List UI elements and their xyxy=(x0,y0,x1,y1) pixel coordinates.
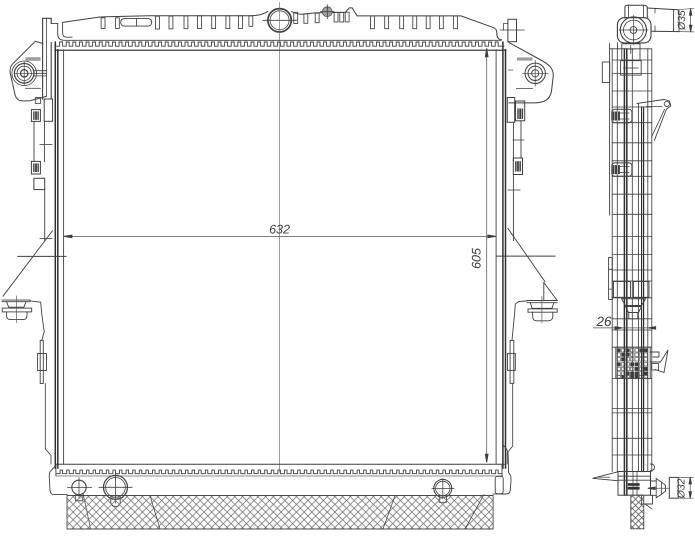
svg-text:Ø32: Ø32 xyxy=(677,478,688,499)
svg-text:26: 26 xyxy=(595,314,612,329)
svg-text:Ø35: Ø35 xyxy=(677,10,688,31)
svg-text:632: 632 xyxy=(269,222,290,236)
svg-text:605: 605 xyxy=(470,248,484,269)
